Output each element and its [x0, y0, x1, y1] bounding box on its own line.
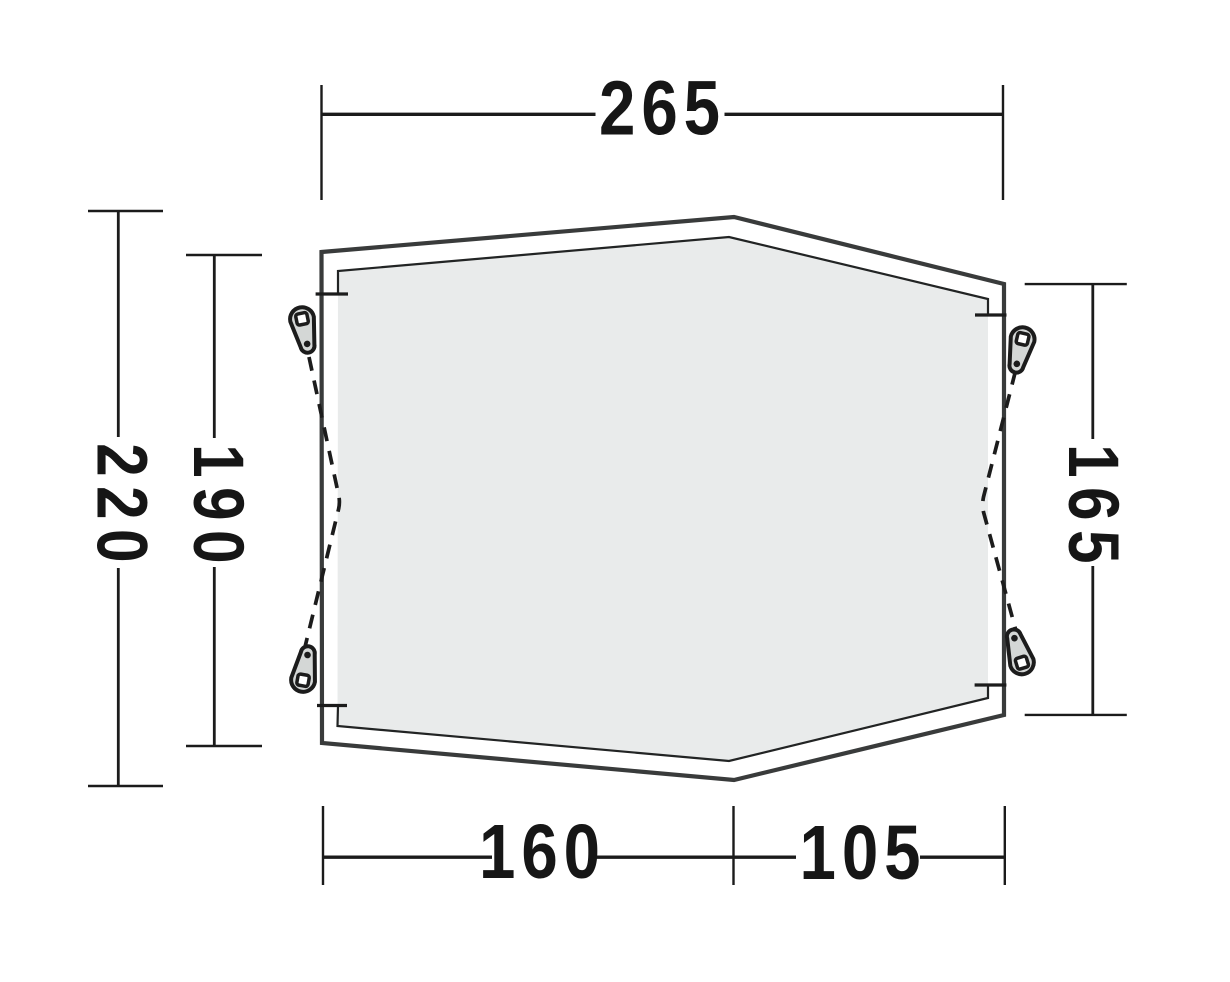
svg-text:220: 220: [82, 443, 162, 572]
svg-text:105: 105: [799, 810, 926, 896]
svg-text:265: 265: [599, 66, 726, 152]
svg-text:165: 165: [1054, 444, 1134, 573]
svg-text:160: 160: [479, 809, 606, 895]
svg-text:190: 190: [179, 444, 259, 573]
